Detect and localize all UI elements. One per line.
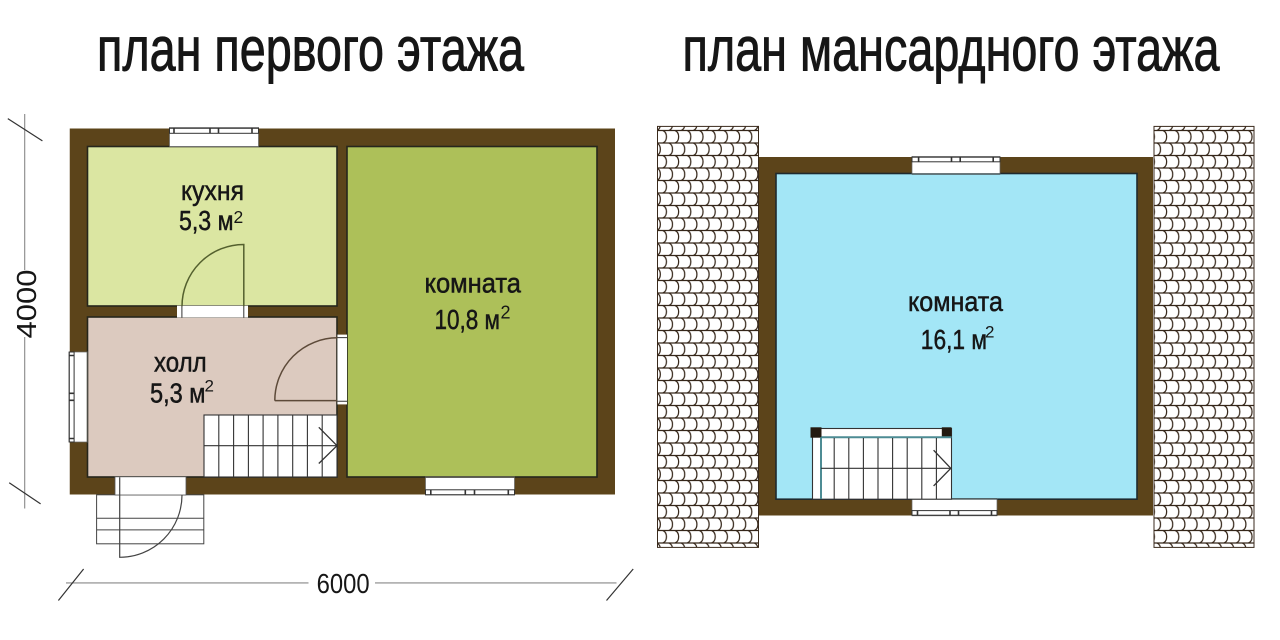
svg-text:2: 2 [205, 376, 214, 395]
svg-text:5,3 м: 5,3 м [150, 378, 206, 409]
svg-text:план первого этажа: план первого этажа [97, 16, 524, 85]
svg-text:комната: комната [425, 268, 522, 299]
svg-text:кухня: кухня [181, 175, 244, 206]
svg-text:16,1 м: 16,1 м [921, 324, 987, 355]
svg-text:5,3 м: 5,3 м [179, 205, 234, 236]
svg-text:4000: 4000 [11, 270, 42, 339]
svg-text:2: 2 [985, 323, 994, 342]
svg-text:6000: 6000 [317, 568, 370, 599]
svg-text:2: 2 [234, 207, 244, 227]
svg-text:комната: комната [908, 286, 1003, 317]
svg-text:2: 2 [501, 303, 511, 323]
svg-text:10,8 м: 10,8 м [435, 304, 501, 335]
svg-text:план мансардного этажа: план мансардного этажа [683, 16, 1220, 85]
svg-text:холл: холл [154, 347, 207, 378]
